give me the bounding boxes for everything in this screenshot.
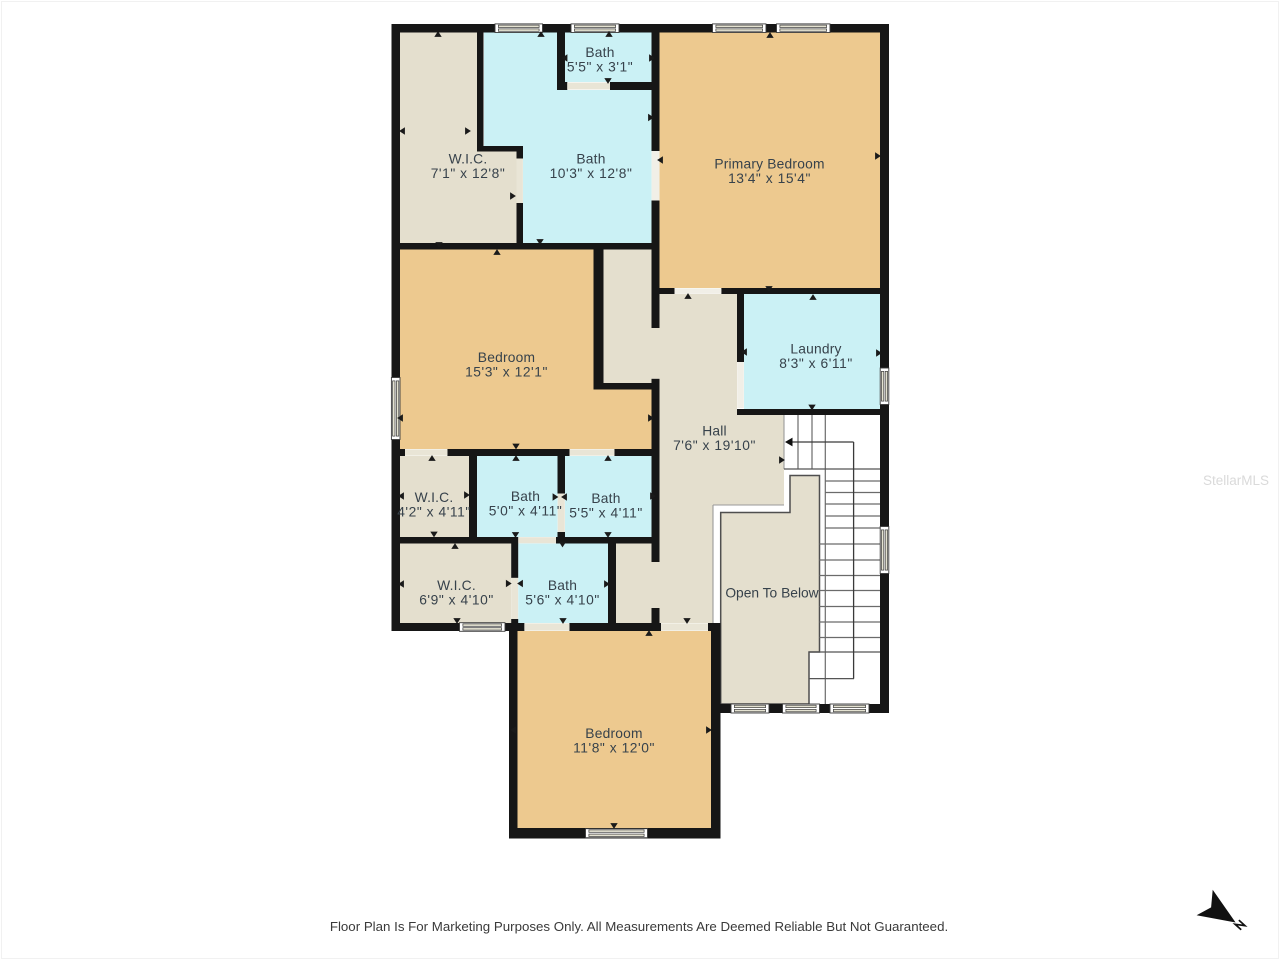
svg-text:W.I.C.: W.I.C. [449,152,488,167]
svg-text:6'9" x 4'10": 6'9" x 4'10" [419,593,494,608]
svg-text:13'4" x 15'4": 13'4" x 15'4" [728,171,811,186]
svg-text:Bath: Bath [585,45,614,60]
svg-text:Hall: Hall [702,424,727,439]
svg-text:4'2" x 4'11": 4'2" x 4'11" [397,505,471,520]
svg-text:11'8" x 12'0": 11'8" x 12'0" [573,740,655,755]
svg-text:15'3" x 12'1": 15'3" x 12'1" [465,365,548,380]
svg-text:Floor Plan Is For Marketing Pu: Floor Plan Is For Marketing Purposes Onl… [330,919,948,934]
svg-text:W.I.C.: W.I.C. [437,578,476,593]
svg-text:10'3" x 12'8": 10'3" x 12'8" [550,166,633,181]
svg-text:7'1" x 12'8": 7'1" x 12'8" [431,166,506,181]
svg-text:Open To Below: Open To Below [725,586,818,601]
svg-text:W.I.C.: W.I.C. [415,490,454,505]
svg-text:Primary Bedroom: Primary Bedroom [714,157,824,172]
svg-text:8'3" x 6'11": 8'3" x 6'11" [779,356,853,371]
svg-text:7'6" x 19'10": 7'6" x 19'10" [673,438,756,453]
svg-text:Bath: Bath [511,489,540,504]
svg-text:Bath: Bath [591,491,620,506]
svg-text:5'5" x 4'11": 5'5" x 4'11" [569,506,643,521]
svg-text:5'0" x 4'11": 5'0" x 4'11" [489,504,563,519]
svg-text:Bath: Bath [548,578,577,593]
svg-text:5'5" x 3'1": 5'5" x 3'1" [567,60,633,75]
svg-text:Bedroom: Bedroom [478,350,535,365]
svg-text:Bath: Bath [576,152,605,167]
svg-text:5'6" x 4'10": 5'6" x 4'10" [525,593,600,608]
svg-text:Laundry: Laundry [790,342,841,357]
svg-text:Bedroom: Bedroom [585,726,642,741]
svg-text:StellarMLS: StellarMLS [1203,473,1269,488]
